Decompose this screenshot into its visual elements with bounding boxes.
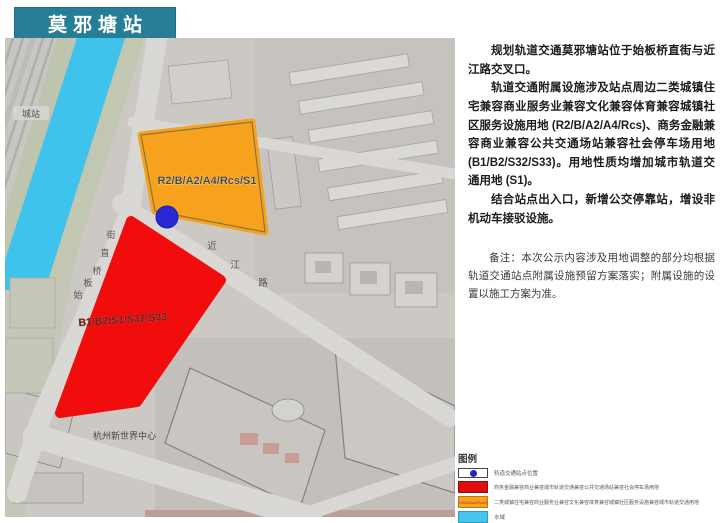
street-char: 桥: [92, 265, 101, 276]
street-char: 板: [83, 277, 92, 288]
street-char: 直: [100, 247, 109, 258]
street-char: 近: [207, 240, 217, 252]
railway-station-label: 城站: [22, 108, 40, 119]
street-char: 路: [258, 277, 268, 289]
legend-row-station: 轨道交通站点位置: [458, 468, 716, 478]
legend-row-red-parcel: 商务金融兼容商业兼容城市轨道交通兼容公共交通场站兼容社会停车场用地: [458, 481, 716, 493]
legend-swatch-inner-code: R2/B/A2/A4/Rcs/S1: [458, 500, 488, 505]
station-title-banner: 莫邪塘站: [14, 7, 176, 40]
legend-row-water: 水域: [458, 511, 716, 523]
station-dot-icon: [470, 470, 477, 477]
description-panel: 规划轨道交通莫邪塘站位于始板桥直街与近江路交叉口。 轨道交通附属设施涉及站点周边…: [468, 42, 715, 304]
description-note: 备注：本次公示内容涉及用地调整的部分均根据轨道交通站点附属设施预留方案落实；附属…: [468, 250, 715, 304]
landmark-label: 杭州新世界中心: [93, 430, 156, 441]
street-char: 江: [230, 260, 240, 271]
station-location-dot: [156, 206, 178, 228]
legend-title: 图例: [458, 451, 716, 465]
legend-swatch-red: [458, 481, 488, 493]
legend-label: 轨道交通站点位置: [494, 469, 538, 477]
legend-row-orange-parcel: R2/B/A2/A4/Rcs/S1 二类城镇住宅兼容商业服务业兼容文化兼容体育兼…: [458, 496, 716, 508]
description-paragraph-1: 规划轨道交通莫邪塘站位于始板桥直街与近江路交叉口。: [468, 42, 715, 79]
planning-map: 城站 R2/B/A2/A4/Rcs/S1 B1/B2/S1/S32/S33 始 …: [5, 38, 455, 517]
station-title: 莫邪塘站: [42, 10, 148, 37]
map-legend: 图例 轨道交通站点位置 商务金融兼容商业兼容城市轨道交通兼容公共交通场站兼容社会…: [458, 451, 716, 523]
legend-swatch-water: [458, 511, 488, 523]
legend-label: 水域: [494, 513, 505, 521]
legend-label: 二类城镇住宅兼容商业服务业兼容文化兼容体育兼容城镇社区服务设施兼容城市轨道交通用…: [494, 499, 699, 506]
legend-swatch-station: [458, 468, 488, 478]
description-paragraph-3: 结合站点出入口，新增公交停靠站，增设非机动车接驳设施。: [468, 191, 715, 228]
description-paragraph-2: 轨道交通附属设施涉及站点周边二类城镇住宅兼容商业服务业兼容文化兼容体育兼容城镇社…: [468, 79, 715, 191]
orange-parcel-label: R2/B/A2/A4/Rcs/S1: [157, 175, 256, 187]
street-char: 始: [73, 289, 82, 300]
street-char: 街: [106, 229, 115, 240]
legend-label: 商务金融兼容商业兼容城市轨道交通兼容公共交通场站兼容社会停车场用地: [494, 484, 659, 491]
legend-swatch-orange: R2/B/A2/A4/Rcs/S1: [458, 496, 488, 508]
